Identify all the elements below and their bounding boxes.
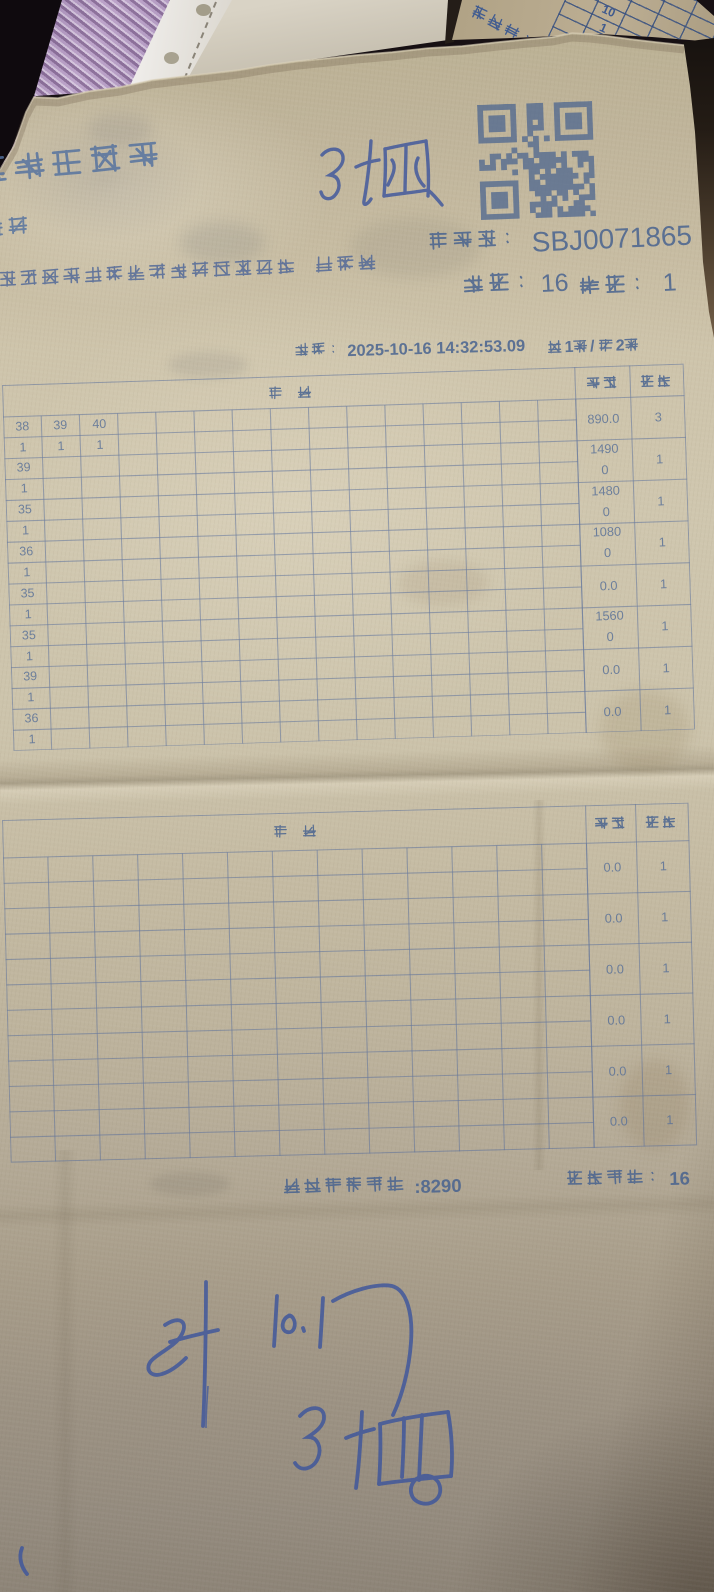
svg-text:/: / [590,338,596,355]
svg-text:2: 2 [616,337,626,354]
svg-text:1: 1 [564,339,574,356]
svg-text::8290: :8290 [414,1175,462,1197]
svg-text:16: 16 [540,269,569,298]
svg-text:1: 1 [662,268,677,297]
svg-text:16: 16 [669,1167,690,1189]
